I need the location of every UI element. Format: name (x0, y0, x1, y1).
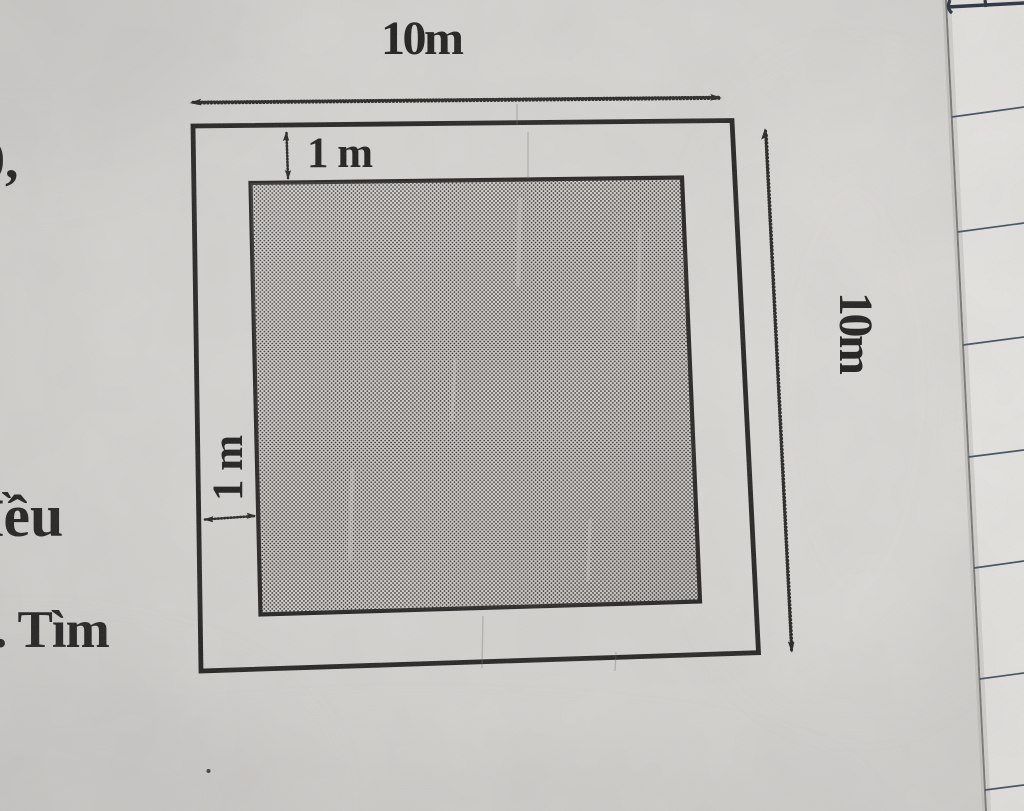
svg-text:. Tìm: . Tìm (0, 601, 110, 659)
svg-text:1 m: 1 m (205, 435, 252, 501)
svg-text:10m: 10m (381, 12, 464, 65)
svg-text:10m: 10m (829, 292, 882, 375)
svg-text:1 m: 1 m (307, 130, 373, 177)
svg-text:đều: đều (0, 483, 63, 549)
svg-text:0,: 0, (0, 130, 19, 190)
